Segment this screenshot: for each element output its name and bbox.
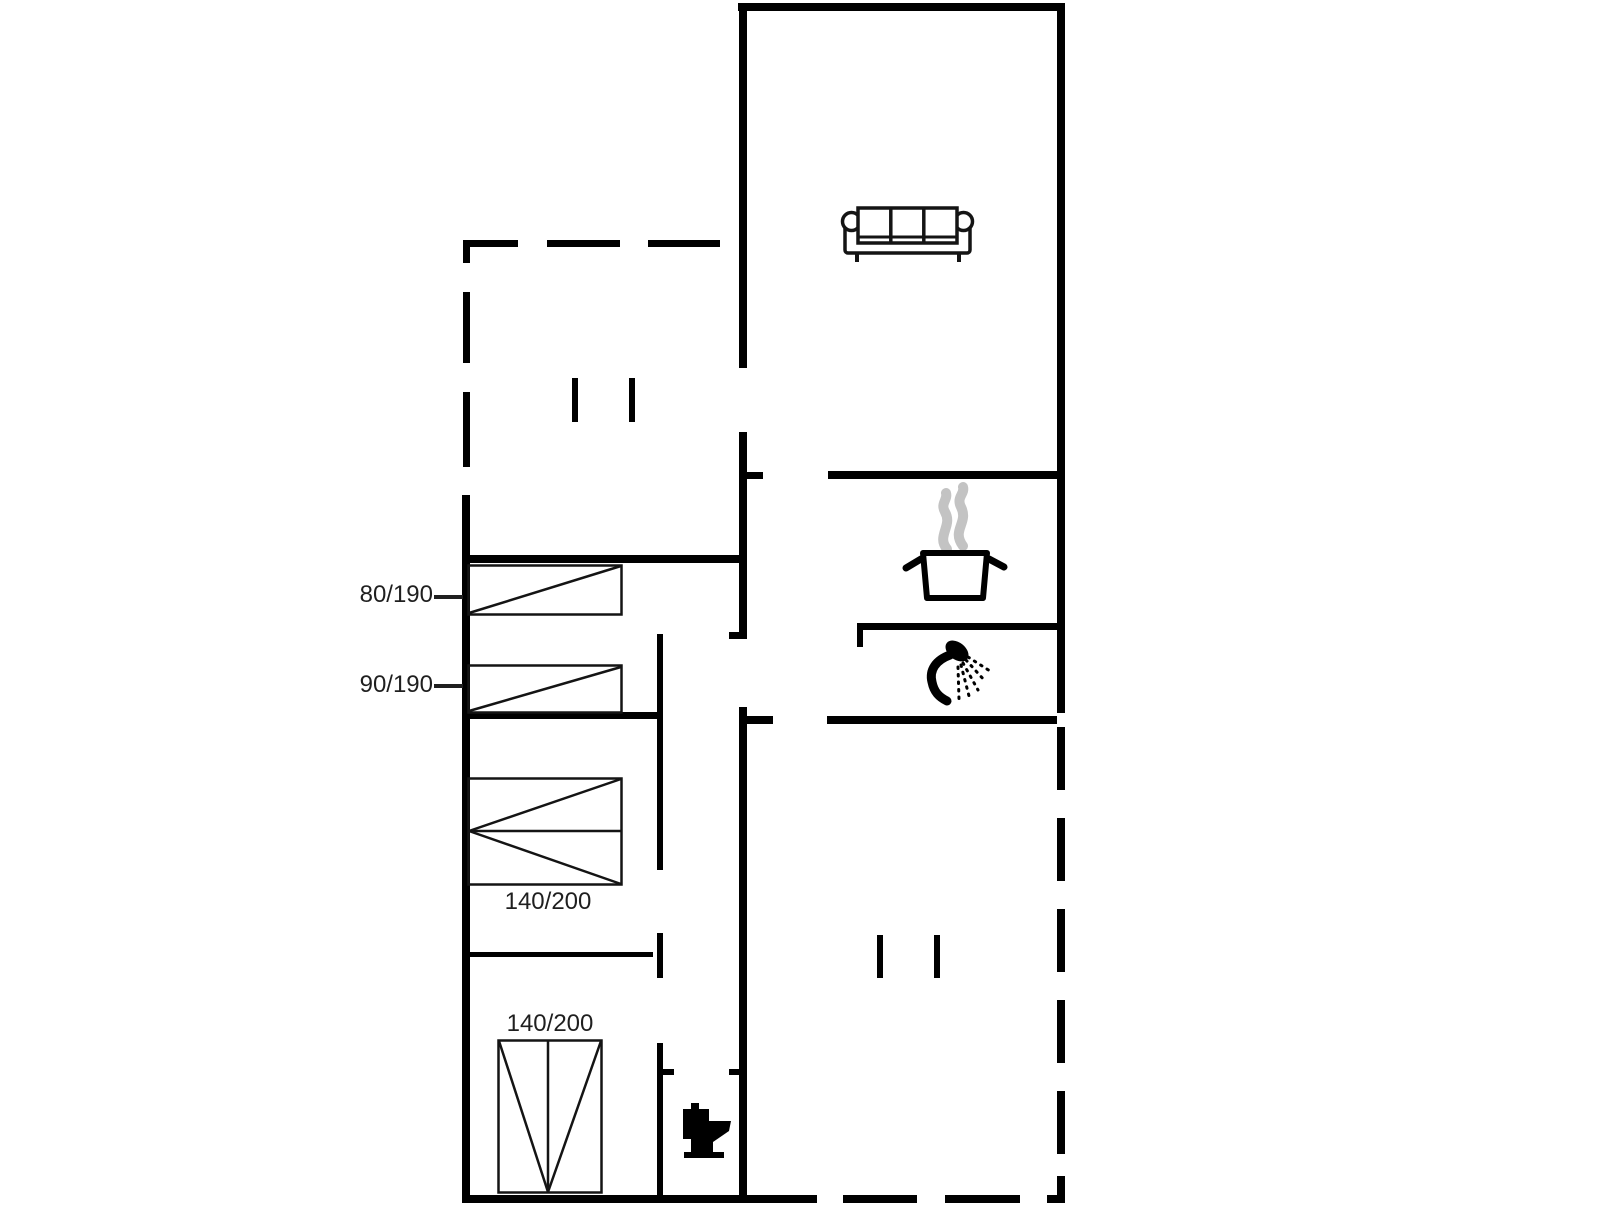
south-section-right-wall <box>739 707 747 1203</box>
wc-door-stub-left <box>663 1069 674 1075</box>
corridor-wall-cap <box>657 933 663 978</box>
dash-segment <box>463 392 470 467</box>
pot-handle-left <box>906 559 921 568</box>
toilet-base <box>684 1152 724 1158</box>
dash-segment <box>945 1195 1020 1203</box>
dash-segment <box>463 292 470 363</box>
shower-arm <box>931 655 950 701</box>
terrace-dashed-outline-top-left <box>463 240 720 467</box>
window-marker-icon <box>629 378 635 422</box>
bed-diagonal <box>548 1041 601 1192</box>
dash-segment <box>1057 1091 1065 1154</box>
window-markers <box>572 378 940 978</box>
corridor-wall-upper <box>657 634 663 870</box>
bed-diagonal <box>469 779 621 831</box>
wc-door-stub-right <box>729 1069 739 1075</box>
dash-segment <box>1057 1000 1065 1063</box>
kitchen-wall-stub <box>747 472 763 479</box>
spray-ray <box>968 657 990 671</box>
bed-80x190-icon <box>469 566 622 615</box>
bed-size-label-90-190: 90/190 <box>341 673 433 697</box>
terrace-dashed-outline-bottom-right <box>843 727 1065 1203</box>
bed-size-label-80-190: 80/190 <box>341 583 433 607</box>
window-marker-icon <box>934 935 940 978</box>
toilet-pedestal <box>691 1139 713 1153</box>
cooking-pot-with-steam-icon <box>906 487 1004 598</box>
shower-spray <box>958 657 990 699</box>
bathroom-door-jamb <box>857 623 863 647</box>
steam-wisp <box>959 487 964 546</box>
pot-body <box>923 553 987 598</box>
dash-segment <box>843 1195 917 1203</box>
bathroom-bottom-wall <box>827 716 1057 724</box>
steam-wisp <box>943 493 947 549</box>
dash-segment <box>1057 909 1065 972</box>
living-room-left-wall-upper <box>739 3 747 368</box>
bed-diagonal <box>499 1041 548 1192</box>
kitchen-top-wall <box>828 471 1057 479</box>
bathroom-top-wall <box>857 623 1057 630</box>
bed-diagonal <box>469 831 621 884</box>
floor-plan-page: 80/190 90/190 140/200 140/200 <box>0 0 1606 1205</box>
window-marker-icon <box>572 378 578 422</box>
bed-size-label-140-200-middle: 140/200 <box>489 890 607 914</box>
hallway-south-stub <box>747 716 773 724</box>
leader-line-80-190 <box>434 595 463 599</box>
hall-door-stub <box>729 632 739 639</box>
bed-140x200-icon-bottom <box>499 1041 602 1193</box>
living-room-left-wall-lower <box>739 432 747 639</box>
dash-segment <box>547 240 620 247</box>
bed-90x190-icon <box>469 666 622 713</box>
wall-bottom <box>462 1195 817 1203</box>
bed-diagonal <box>469 667 621 711</box>
wall-right <box>1057 3 1065 713</box>
toilet-button <box>691 1103 699 1110</box>
bedroom-section-top-wall <box>462 555 747 563</box>
label-leader-lines <box>434 595 463 688</box>
dash-segment <box>1047 1195 1065 1203</box>
sofa-icon <box>843 208 973 262</box>
bed-diagonal <box>469 566 621 613</box>
wall-top <box>738 3 1065 11</box>
pot-handle-right <box>989 559 1004 567</box>
bedroom-divider-wall-b <box>466 952 653 957</box>
bed-size-label-140-200-bottom: 140/200 <box>491 1012 609 1036</box>
bed-140x200-icon-middle <box>469 779 622 885</box>
dash-segment <box>1057 818 1065 881</box>
window-marker-icon <box>877 935 883 978</box>
bed-outline <box>499 1041 602 1193</box>
steam-icon <box>943 487 963 549</box>
spray-ray <box>958 667 959 699</box>
toilet-icon <box>683 1103 731 1158</box>
toilet-bowl <box>709 1121 731 1142</box>
dash-segment <box>1057 727 1065 790</box>
shower-icon <box>931 636 990 701</box>
wc-left-wall <box>657 1043 663 1197</box>
dash-segment <box>463 240 518 247</box>
dash-segment <box>648 240 720 247</box>
toilet-tank <box>683 1109 709 1139</box>
floor-plan-canvas <box>0 0 1606 1205</box>
leader-line-90-190 <box>434 684 463 688</box>
